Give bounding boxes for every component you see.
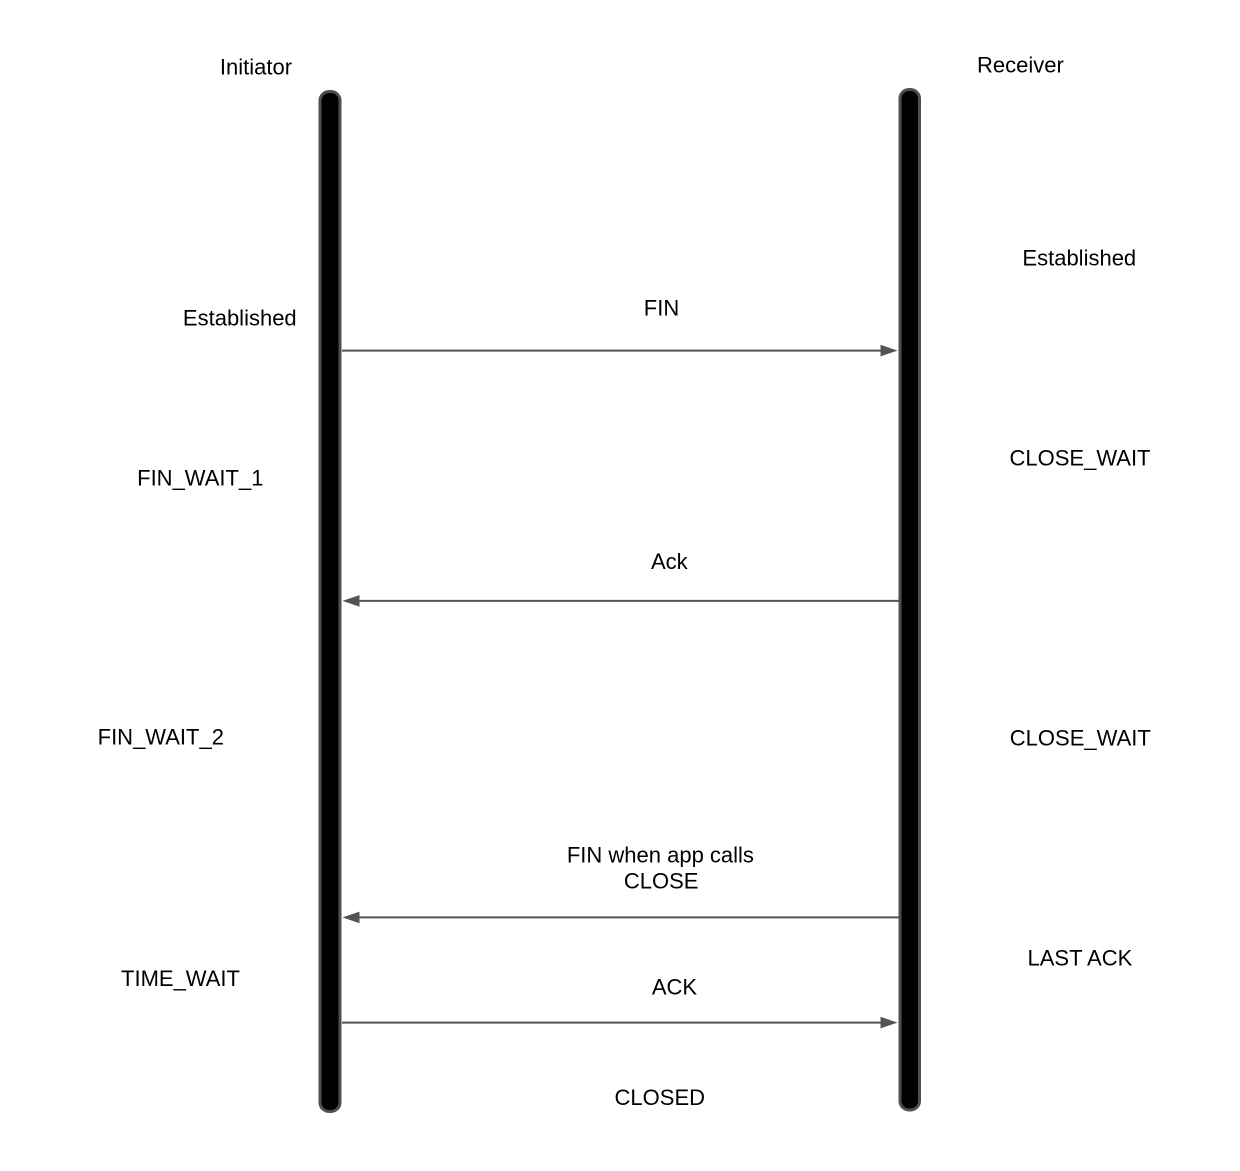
svg-text:TIME_WAIT: TIME_WAIT <box>121 966 240 991</box>
svg-text:Initiator: Initiator <box>220 54 292 79</box>
svg-text:CLOSE_WAIT: CLOSE_WAIT <box>1010 725 1151 750</box>
svg-text:FIN when app calls: FIN when app calls <box>567 842 754 867</box>
svg-text:LAST ACK: LAST ACK <box>1028 946 1133 971</box>
svg-text:CLOSE: CLOSE <box>624 869 699 894</box>
svg-text:ACK: ACK <box>652 974 698 999</box>
svg-text:Established: Established <box>183 306 297 331</box>
svg-text:FIN: FIN <box>644 295 679 320</box>
svg-text:FIN_WAIT_1: FIN_WAIT_1 <box>137 466 263 491</box>
svg-text:CLOSE_WAIT: CLOSE_WAIT <box>1010 445 1151 470</box>
svg-text:Ack: Ack <box>651 549 689 574</box>
svg-text:Established: Established <box>1022 245 1136 270</box>
svg-text:Receiver: Receiver <box>977 52 1064 77</box>
svg-text:CLOSED: CLOSED <box>615 1085 705 1110</box>
svg-text:FIN_WAIT_2: FIN_WAIT_2 <box>98 724 224 749</box>
